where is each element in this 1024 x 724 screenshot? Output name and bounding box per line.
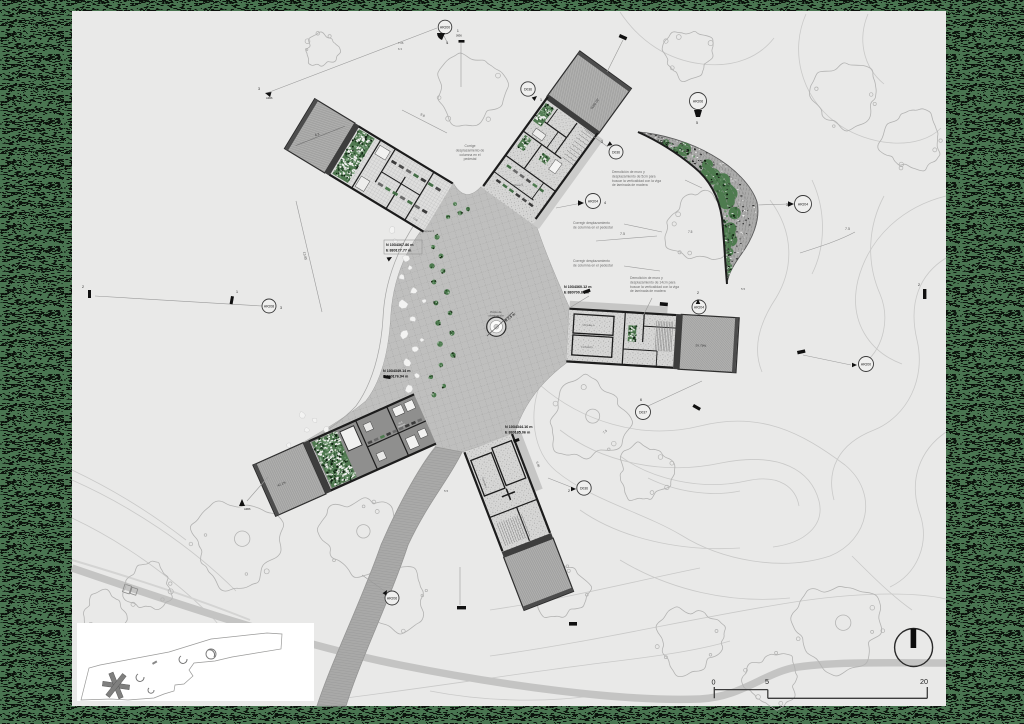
svg-text:5: 5: [696, 121, 698, 125]
svg-text:Corrige: Corrige: [464, 144, 475, 148]
svg-text:E 880176.94 m: E 880176.94 m: [383, 374, 409, 378]
svg-text:pedestal: pedestal: [464, 157, 477, 161]
svg-text:AR208: AR208: [264, 304, 274, 308]
svg-text:4: 4: [604, 201, 606, 205]
svg-text:AR204: AR204: [694, 305, 704, 309]
svg-text:D036: D036: [580, 486, 588, 490]
svg-text:AR200: AR200: [861, 362, 871, 366]
svg-text:Corregir desplazamiento: Corregir desplazamiento: [573, 259, 610, 263]
svg-text:7.5: 7.5: [688, 230, 693, 234]
svg-text:buscar la verticalidad con la: buscar la verticalidad con la viga: [630, 285, 679, 289]
svg-text:3: 3: [786, 203, 788, 207]
svg-text:AR204: AR204: [588, 199, 598, 203]
svg-text:3: 3: [601, 140, 603, 144]
svg-text:Demolición de muro y: Demolición de muro y: [612, 170, 645, 174]
svg-text:AR06: AR06: [244, 507, 251, 511]
svg-text:6: 6: [640, 398, 642, 402]
svg-text:5: 5: [765, 677, 769, 686]
svg-text:E 880185.06 m: E 880185.06 m: [505, 430, 531, 434]
svg-text:N 1034367.86 m: N 1034367.86 m: [386, 243, 414, 247]
svg-text:1: 1: [540, 98, 542, 102]
svg-text:AR206: AR206: [387, 596, 397, 600]
svg-text:0: 0: [712, 678, 716, 687]
svg-text:desplazamiento de 5cm para: desplazamiento de 5cm para: [612, 174, 656, 178]
svg-text:6.3: 6.3: [398, 47, 402, 51]
svg-text:2: 2: [697, 291, 699, 295]
svg-text:Corregir desplazamiento: Corregir desplazamiento: [573, 221, 610, 225]
svg-text:N 1034344.16 m: N 1034344.16 m: [505, 425, 533, 429]
svg-text:N 1034349.14 m: N 1034349.14 m: [383, 369, 411, 373]
svg-text:N 1034360.12 m: N 1034360.12 m: [564, 285, 592, 289]
svg-text:AR206: AR206: [693, 99, 703, 103]
svg-text:0936: 0936: [456, 34, 462, 38]
svg-text:buscar la verticalidad con la: buscar la verticalidad con la viga: [612, 179, 661, 183]
svg-text:26.79%: 26.79%: [695, 343, 706, 348]
svg-text:E 880177.77 m: E 880177.77 m: [386, 248, 412, 252]
svg-text:Acceso 4: Acceso 4: [424, 230, 435, 233]
svg-text:Demolición de muro y: Demolición de muro y: [630, 276, 663, 280]
svg-text:columna en el: columna en el: [459, 153, 480, 157]
svg-text:3: 3: [280, 306, 282, 310]
svg-text:5.5: 5.5: [741, 287, 746, 291]
svg-text:desplazamiento de: desplazamiento de: [456, 148, 485, 152]
svg-text:Acceso 5: Acceso 5: [513, 184, 524, 187]
svg-text:de laminada de madera: de laminada de madera: [630, 289, 666, 293]
svg-text:7.5: 7.5: [845, 227, 850, 231]
svg-text:1: 1: [457, 29, 459, 33]
svg-text:de columna en el pedestal: de columna en el pedestal: [573, 263, 613, 267]
svg-text:de laminada de madera: de laminada de madera: [612, 183, 648, 187]
svg-text:D037: D037: [639, 410, 647, 414]
svg-text:D036: D036: [612, 150, 620, 154]
svg-text:5.5: 5.5: [444, 489, 449, 493]
svg-text:2: 2: [568, 489, 570, 493]
svg-text:3: 3: [258, 87, 260, 91]
svg-text:2: 2: [918, 283, 920, 287]
svg-text:2: 2: [82, 285, 84, 289]
svg-text:4: 4: [446, 41, 448, 45]
svg-text:AR06: AR06: [266, 96, 273, 100]
svg-text:AR204: AR204: [798, 202, 808, 206]
svg-text:20: 20: [920, 677, 928, 686]
svg-text:1: 1: [236, 290, 238, 294]
svg-text:E 880700.86 m: E 880700.86 m: [564, 290, 590, 294]
svg-text:7.5: 7.5: [620, 232, 625, 236]
svg-text:7.06: 7.06: [398, 41, 404, 45]
svg-text:desplazamiento de 14cm para: desplazamiento de 14cm para: [630, 280, 676, 284]
svg-text:D036: D036: [524, 87, 532, 91]
svg-text:de columna en el pedestal: de columna en el pedestal: [573, 225, 613, 229]
svg-text:observación: observación: [488, 313, 504, 317]
svg-text:AR200: AR200: [440, 25, 450, 29]
